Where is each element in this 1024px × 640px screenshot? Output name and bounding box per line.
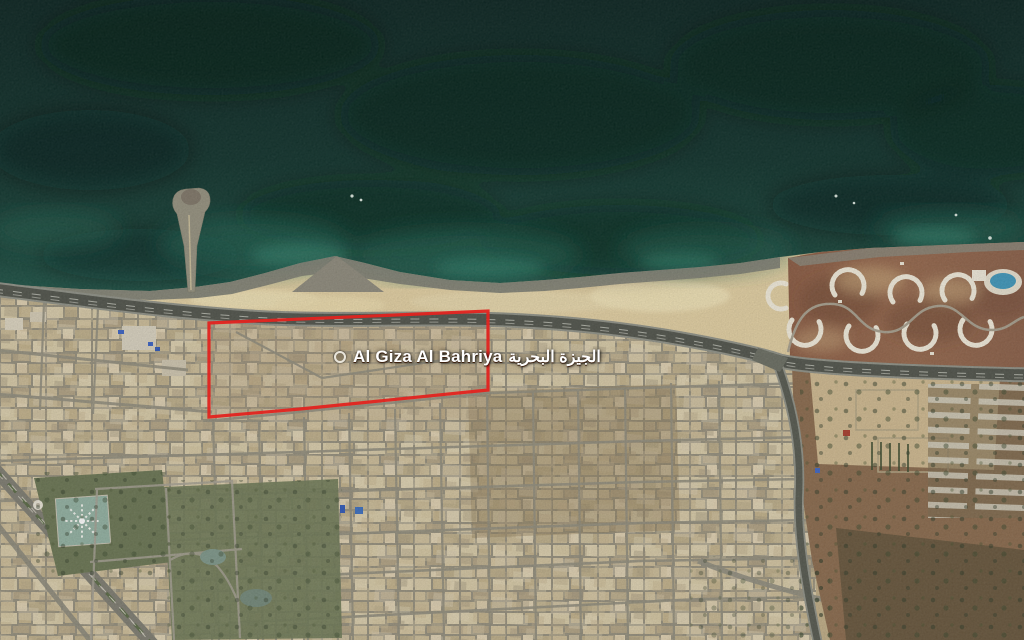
grain-light <box>0 0 1024 640</box>
place-ring-marker-icon[interactable] <box>334 351 346 363</box>
map-art <box>0 0 1024 640</box>
place-label[interactable]: Al Giza Al Bahriyaالجيزة البحرية <box>334 347 601 367</box>
satellite-map-canvas[interactable]: Al Giza Al Bahriyaالجيزة البحرية <box>0 0 1024 640</box>
place-name: Al Giza Al Bahriyaالجيزة البحرية <box>353 347 601 367</box>
